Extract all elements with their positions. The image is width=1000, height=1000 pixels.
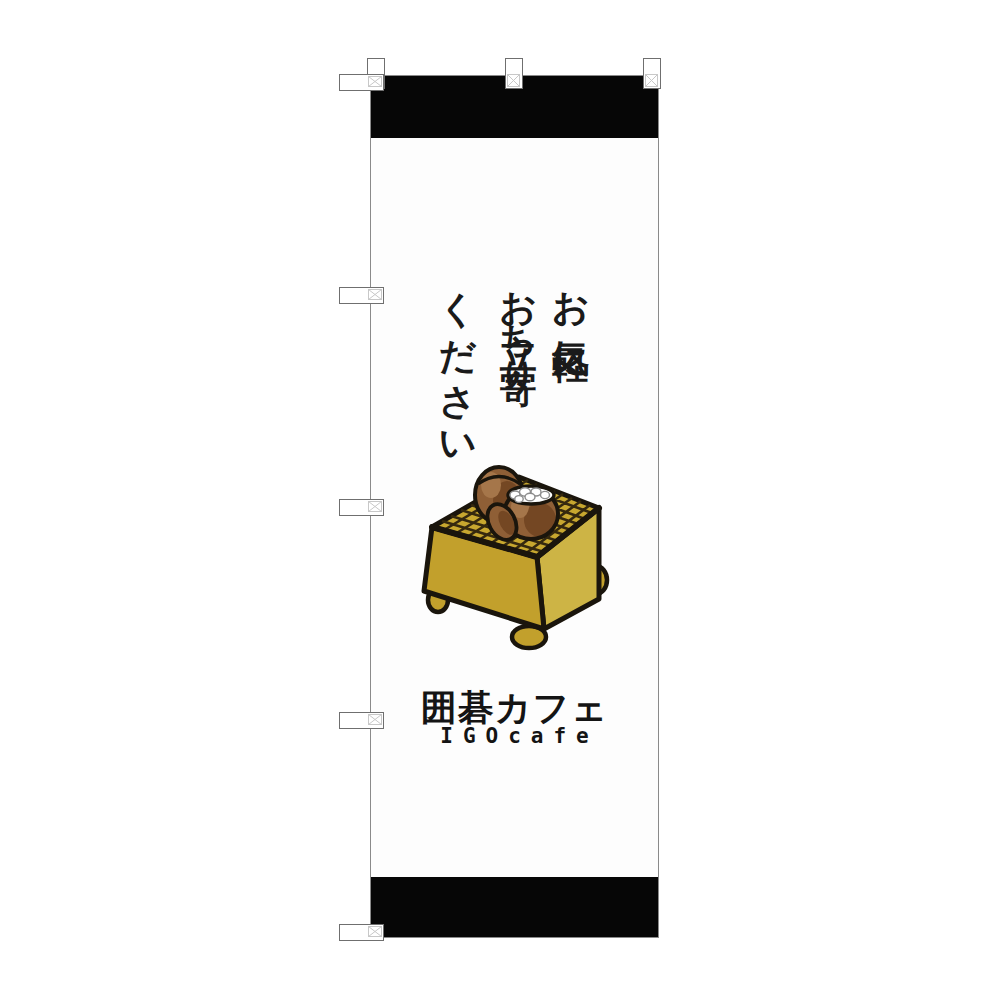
x-stitch-icon xyxy=(645,74,658,87)
x-stitch-icon xyxy=(368,714,382,725)
x-stitch-icon xyxy=(368,926,382,937)
x-stitch-icon xyxy=(368,76,382,87)
nobori-banner: お気軽に お立ち寄り ください xyxy=(370,75,659,938)
goban-illustration-svg xyxy=(404,454,614,654)
pole-tab-side-1 xyxy=(339,74,384,91)
pole-tab-top-center xyxy=(505,58,523,89)
x-stitch-icon xyxy=(368,289,382,300)
shop-name-english: IGOcafe xyxy=(371,724,658,748)
pole-tab-top-right xyxy=(643,58,661,89)
nobori-product-image: お気軽に お立ち寄り ください xyxy=(0,0,1000,1000)
bottom-black-band xyxy=(371,877,658,937)
pole-tab-side-3 xyxy=(339,499,384,516)
pole-tab-side-5 xyxy=(339,924,384,941)
pole-tab-side-4 xyxy=(339,712,384,729)
goban-illustration xyxy=(404,454,614,654)
x-stitch-icon xyxy=(368,501,382,512)
pole-tab-side-2 xyxy=(339,287,384,304)
x-stitch-icon xyxy=(507,74,520,87)
